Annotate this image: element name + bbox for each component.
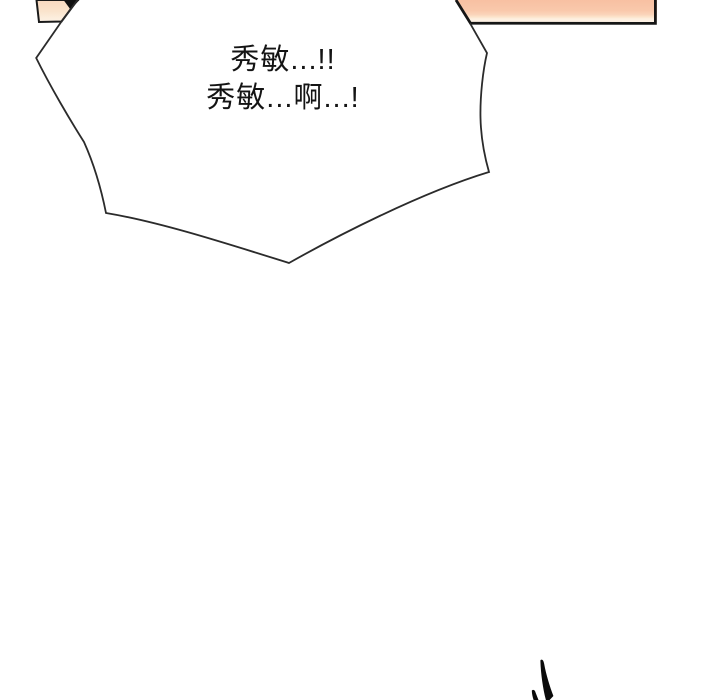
bottom-ink-stroke-main [540, 660, 553, 700]
top-right-fragment-fill [455, 0, 657, 23]
bottom-ink-stroke-small [532, 690, 539, 700]
top-left-artwork-fragment [37, 0, 80, 22]
bottom-ink-strokes [532, 660, 554, 700]
speech-bubble-outline [36, 0, 489, 263]
speech-line-1: 秀敏...!! [133, 42, 433, 80]
speech-line-2: 秀敏...啊...! [133, 80, 433, 118]
speech-bubble-text: 秀敏...!! 秀敏...啊...! [133, 42, 433, 117]
comic-panel-page: 秀敏...!! 秀敏...啊...! [0, 0, 720, 700]
top-right-artwork-fragment [455, 0, 657, 23]
